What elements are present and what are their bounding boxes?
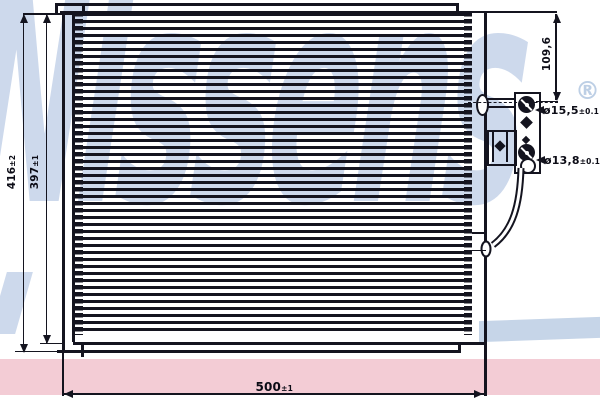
arrowhead (43, 335, 51, 344)
arrowhead (20, 14, 28, 23)
dim-ext-109-bottom (536, 101, 558, 103)
top-plate-left-cap (55, 3, 58, 13)
fin-serration-left (75, 13, 83, 335)
watermark-swoosh (479, 317, 600, 342)
dim-ext-top (23, 13, 85, 15)
label-bottom-port-diameter: ø13,8±0.1 (544, 154, 600, 167)
left-side-plate-outer (62, 11, 65, 352)
hose-end-tick (472, 250, 486, 252)
label-overall-height: 416±2 (6, 149, 22, 195)
label-overall-width: 500±1 (225, 380, 293, 394)
arrowhead (20, 344, 28, 353)
arrowhead (553, 92, 561, 101)
arrowhead (43, 14, 51, 23)
bottom-plate-right-tab (458, 343, 461, 352)
bottom-plate-left-tab (81, 344, 84, 357)
top-port-circle (518, 96, 535, 113)
bottom-plate-top-line (73, 342, 484, 345)
dim-line-416 (23, 14, 25, 352)
label-port-height: 109,6 (541, 31, 557, 77)
arrowhead (553, 14, 561, 23)
watermark-fragment (0, 272, 33, 334)
core-fins (83, 13, 464, 335)
bottom-plate-bottom-line (57, 350, 461, 353)
bracket-inner-right (506, 130, 508, 162)
outlet-hose (455, 160, 545, 270)
port-slot (520, 146, 532, 158)
label-top-port-diameter: ø15,5±0.1 (543, 104, 599, 117)
top-plate-line (55, 3, 458, 6)
bottom-pink-band (0, 359, 600, 395)
arrowhead (474, 390, 483, 398)
registered-trademark-icon: ® (575, 76, 600, 105)
arrowhead (64, 390, 73, 398)
condenser-technical-drawing: Nissens ® (0, 0, 600, 400)
inlet-tube-end-cap (476, 94, 489, 116)
port-slot (520, 98, 532, 110)
label-core-height: 397±1 (29, 149, 45, 195)
dim-line-397 (46, 14, 48, 343)
